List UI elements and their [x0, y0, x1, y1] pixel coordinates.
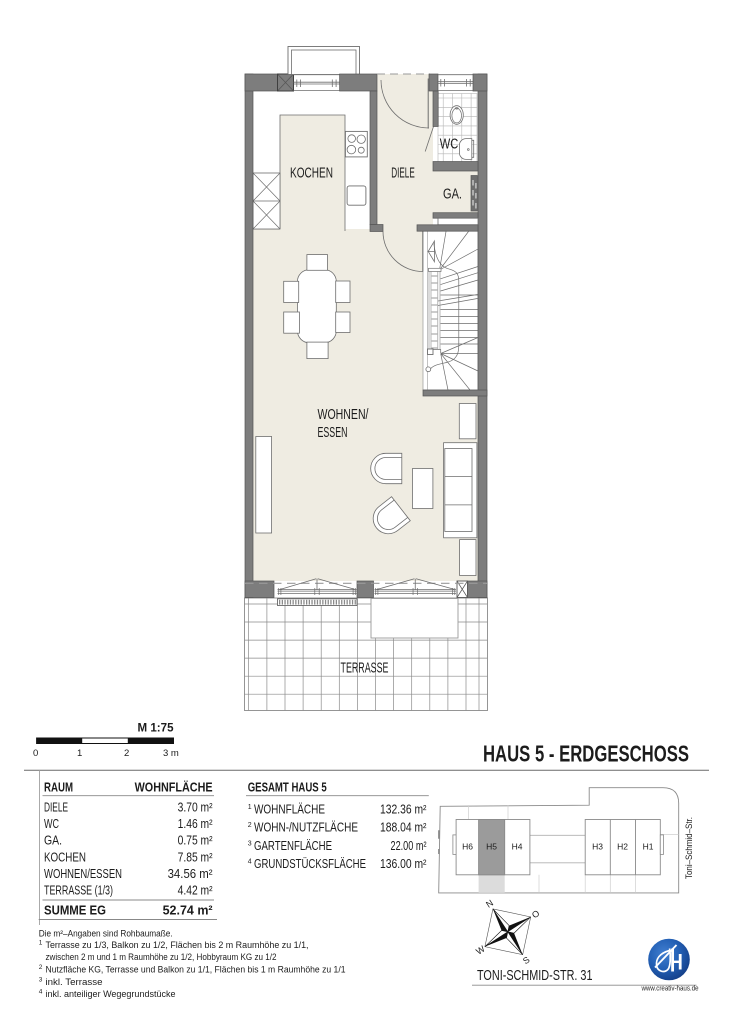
svg-text:inkl. anteiliger Wegegrundstüc: inkl. anteiliger Wegegrundstücke — [46, 989, 176, 999]
svg-text:H1: H1 — [643, 842, 654, 852]
svg-text:WOHNFLÄCHE: WOHNFLÄCHE — [254, 803, 325, 817]
svg-text:2: 2 — [39, 964, 43, 971]
svg-text:1: 1 — [39, 940, 43, 947]
svg-text:3: 3 — [39, 976, 43, 983]
svg-text:H3: H3 — [592, 842, 603, 852]
svg-text:4.42 m²: 4.42 m² — [178, 884, 213, 898]
svg-text:zwischen 2 m und 1 m Raumhöhe: zwischen 2 m und 1 m Raumhöhe zu 1/2, Ho… — [46, 952, 277, 962]
svg-text:GESAMT HAUS 5: GESAMT HAUS 5 — [248, 781, 327, 795]
svg-text:4: 4 — [39, 989, 43, 996]
svg-text:22.00 m²: 22.00 m² — [391, 839, 427, 853]
svg-text:WOHNEN/: WOHNEN/ — [318, 407, 370, 423]
svg-text:2: 2 — [124, 748, 129, 759]
svg-text:0: 0 — [33, 748, 38, 759]
svg-text:DIELE: DIELE — [391, 166, 415, 182]
svg-text:WC: WC — [440, 136, 459, 153]
svg-text:GRUNDSTÜCKSFLÄCHE: GRUNDSTÜCKSFLÄCHE — [254, 857, 366, 871]
svg-text:TERRASSE (1/3): TERRASSE (1/3) — [44, 884, 113, 898]
svg-text:1.46 m²: 1.46 m² — [178, 817, 213, 831]
svg-text:7.85 m²: 7.85 m² — [178, 850, 213, 864]
svg-text:Die m²–Angaben sind Rohbaumaße: Die m²–Angaben sind Rohbaumaße. — [39, 929, 173, 939]
svg-text:GARTENFLÄCHE: GARTENFLÄCHE — [254, 839, 332, 853]
svg-text:132.36 m²: 132.36 m² — [380, 803, 427, 817]
svg-text:Toni–Schmid–Str.: Toni–Schmid–Str. — [684, 817, 694, 879]
svg-text:RAUM: RAUM — [44, 781, 73, 795]
svg-text:1: 1 — [77, 748, 82, 759]
svg-text:GA.: GA. — [443, 187, 462, 203]
svg-text:Terrasse zu 1/3, Balkon zu 1/: Terrasse zu 1/3, Balkon zu 1/2, Flächen … — [46, 940, 309, 950]
svg-text:WC: WC — [44, 817, 59, 831]
svg-text:0.75 m²: 0.75 m² — [178, 834, 213, 848]
svg-text:Nutzfläche KG, Terrasse und Ba: Nutzfläche KG, Terrasse und Balkon zu 1/… — [46, 965, 346, 975]
svg-text:GA.: GA. — [44, 834, 62, 848]
svg-text:TONI-SCHMID-STR. 31: TONI-SCHMID-STR. 31 — [477, 967, 593, 984]
svg-text:H2: H2 — [617, 842, 628, 852]
svg-text:N: N — [484, 898, 495, 910]
svg-text:52.74 m²: 52.74 m² — [163, 904, 213, 918]
svg-text:S: S — [521, 954, 531, 966]
svg-text:WOHN-/NUTZFLÄCHE: WOHN-/NUTZFLÄCHE — [254, 821, 358, 835]
svg-text:O: O — [530, 908, 541, 920]
svg-text:136.00 m²: 136.00 m² — [380, 857, 427, 871]
svg-text:H6: H6 — [462, 842, 473, 852]
svg-text:34.56 m²: 34.56 m² — [168, 867, 213, 881]
svg-text:KOCHEN: KOCHEN — [44, 850, 86, 864]
svg-text:188.04 m²: 188.04 m² — [380, 821, 427, 835]
svg-text:H4: H4 — [512, 842, 523, 852]
svg-text:ESSEN: ESSEN — [318, 425, 348, 441]
svg-text:M 1:75: M 1:75 — [138, 723, 175, 735]
svg-text:3: 3 — [248, 840, 252, 847]
svg-text:1: 1 — [248, 804, 252, 811]
svg-text:KOCHEN: KOCHEN — [290, 166, 333, 182]
svg-text:SUMME EG: SUMME EG — [44, 904, 106, 918]
svg-text:inkl. Terrasse: inkl. Terrasse — [46, 977, 103, 987]
svg-text:HAUS 5 - ERDGESCHOSS: HAUS 5 - ERDGESCHOSS — [483, 741, 689, 767]
svg-text:www.creativ-haus.de: www.creativ-haus.de — [641, 984, 699, 993]
svg-text:3 m: 3 m — [163, 748, 179, 759]
svg-text:DIELE: DIELE — [44, 801, 68, 815]
svg-text:WOHNFLÄCHE: WOHNFLÄCHE — [135, 780, 213, 795]
svg-text:H5: H5 — [486, 842, 497, 852]
svg-text:TERRASSE: TERRASSE — [341, 660, 389, 677]
svg-text:2: 2 — [248, 822, 252, 829]
svg-text:4: 4 — [248, 859, 252, 866]
svg-text:3.70 m²: 3.70 m² — [178, 801, 213, 815]
svg-text:WOHNEN/ESSEN: WOHNEN/ESSEN — [44, 867, 122, 881]
